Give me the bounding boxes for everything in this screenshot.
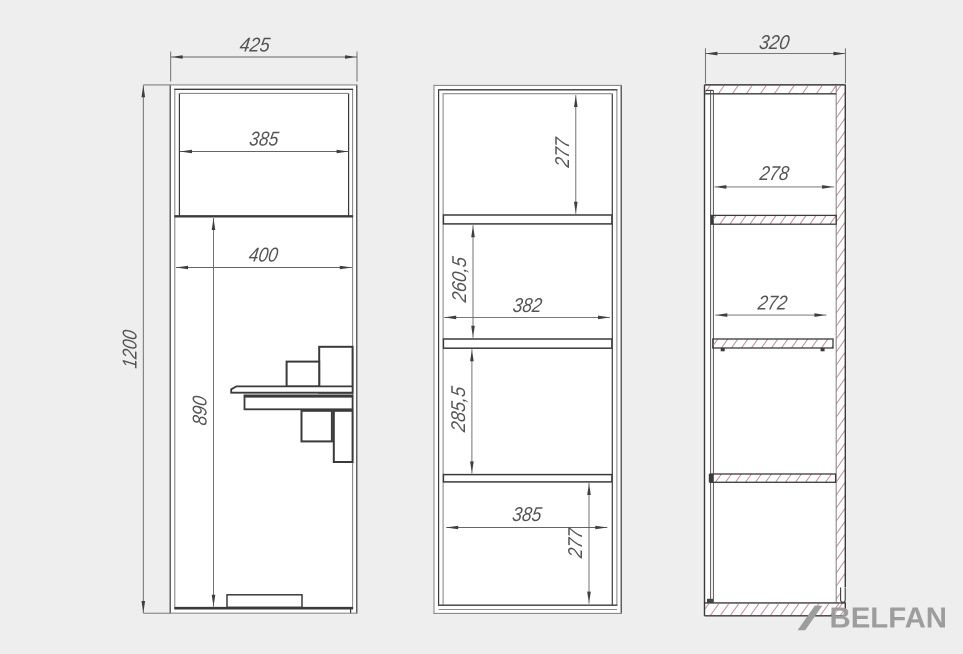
svg-text:1200: 1200 [119, 329, 141, 370]
svg-text:400: 400 [247, 245, 279, 267]
svg-text:385: 385 [511, 504, 544, 526]
svg-text:BELFAN: BELFAN [830, 603, 948, 635]
svg-text:890: 890 [190, 395, 212, 427]
svg-text:320: 320 [758, 32, 791, 54]
svg-text:385: 385 [248, 128, 281, 150]
svg-text:260,5: 260,5 [449, 255, 471, 305]
svg-text:278: 278 [758, 163, 792, 185]
svg-text:277: 277 [565, 526, 587, 560]
svg-text:382: 382 [511, 295, 543, 317]
svg-text:425: 425 [238, 34, 272, 56]
svg-text:285,5: 285,5 [448, 384, 470, 434]
svg-text:277: 277 [552, 136, 574, 170]
svg-text:272: 272 [756, 293, 789, 315]
